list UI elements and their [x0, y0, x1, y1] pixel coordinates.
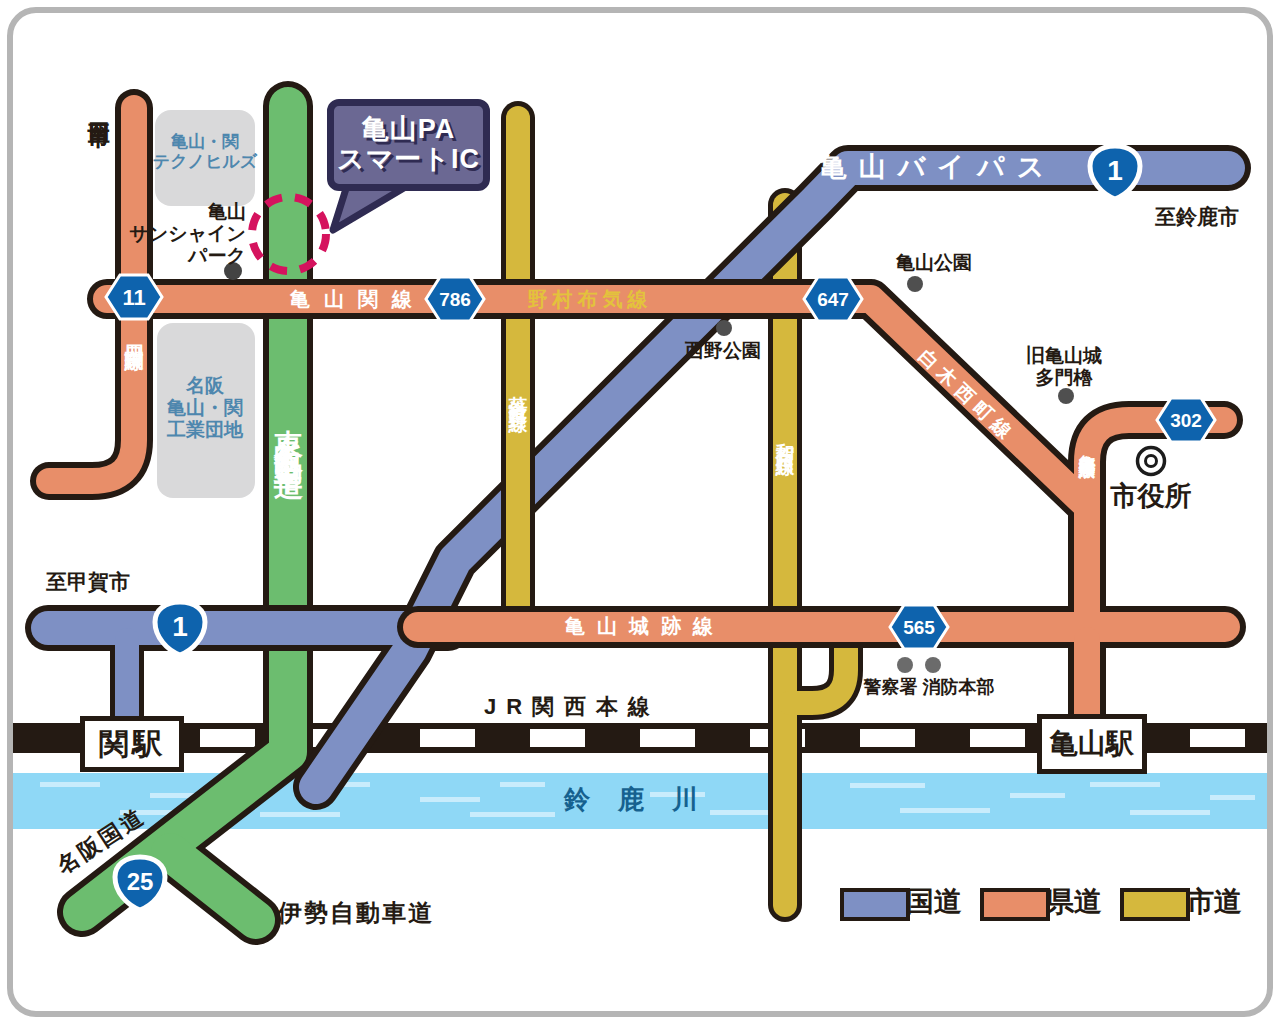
fire-hq-dot — [925, 657, 941, 673]
legend-label-prefectural: 県道 — [1046, 883, 1102, 921]
tamon-turret-dot — [1058, 388, 1074, 404]
nomura-fuke-label: 野村布気線 — [528, 288, 653, 311]
route-1-number: 1 — [1107, 155, 1123, 186]
seki-station: 関駅 — [80, 716, 184, 772]
callout-line1: 亀山PA — [362, 115, 456, 145]
route-786-number: 786 — [439, 289, 471, 310]
route-shield-11: 11 — [106, 275, 162, 319]
castle-line1: 旧亀山城 — [1026, 345, 1102, 367]
callout-line2: スマートIC — [337, 145, 480, 175]
route-shield-1-bypass: 1 — [1090, 146, 1140, 199]
sunshine-line3: パーク — [129, 245, 246, 267]
route-565-number: 565 — [903, 617, 935, 638]
route-shield-565: 565 — [890, 605, 948, 649]
old-castle-label: 旧亀山城 多門櫓 — [1026, 345, 1102, 389]
kameyama-station-label: 亀山駅 — [1050, 725, 1134, 763]
legend-swatch-prefectural — [980, 888, 1050, 921]
route-11-number: 11 — [122, 285, 145, 310]
kameyama-seki-label: 亀山関線 — [290, 288, 426, 311]
nishino-park-dot — [716, 320, 732, 336]
route-1-number-south: 1 — [172, 611, 188, 642]
sunshine-line1: 亀山 — [129, 201, 246, 223]
to-suzuka-label: 至鈴鹿市 — [1155, 205, 1239, 229]
kameyama-park-label: 亀山公園 — [896, 252, 972, 274]
route-302-number: 302 — [1170, 410, 1202, 431]
kogyo-line2: 亀山・関 — [167, 397, 243, 419]
teishajo-label: 亀山停車場石水渓線 — [1078, 441, 1097, 450]
police-dot — [897, 657, 913, 673]
seki-station-label: 関駅 — [99, 724, 165, 765]
cityhall-label: 市役所 — [1111, 481, 1192, 512]
waga-label: 和賀白川線 — [774, 427, 796, 447]
technohills-line1: 亀山・関 — [153, 132, 257, 152]
kogyo-line1: 名阪 — [167, 375, 243, 397]
kogyo-line3: 工業団地 — [167, 419, 243, 441]
cityhall-icon — [1138, 448, 1165, 475]
yokkaichi-seki-label: 四日市関線 — [123, 330, 145, 340]
to-koga-label: 至甲賀市 — [46, 570, 130, 594]
sunshine-park-label: 亀山 サンシャイン パーク — [129, 201, 246, 267]
ise-expressway-label: 伊勢自動車道 — [278, 899, 434, 927]
higashi-meihan-label: 東名阪自動車道 — [271, 406, 304, 455]
route-shield-647: 647 — [804, 277, 862, 321]
technohills-line2: テクノヒルズ — [153, 152, 257, 172]
legend-label-national: 国道 — [906, 883, 962, 921]
joseki-label: 亀山城跡線 — [565, 615, 725, 638]
route-647-number: 647 — [817, 289, 849, 310]
kameyama-station: 亀山駅 — [1037, 714, 1147, 774]
suzuka-river-label: 鈴鹿川 — [564, 785, 726, 815]
police-fire-label: 警察署 消防本部 — [863, 677, 994, 698]
kameyama-access-map: 11 786 647 565 302 1 1 25 — [0, 0, 1280, 1024]
route-25-number: 25 — [127, 868, 154, 895]
route-shield-786: 786 — [426, 277, 484, 321]
nishino-park-label: 西野公園 — [685, 340, 761, 362]
rakushin-label: 落針道野線 — [507, 380, 529, 405]
technohills-label: 亀山・関 テクノヒルズ — [153, 132, 257, 171]
route-shield-302: 302 — [1157, 398, 1215, 442]
legend-swatch-national — [840, 888, 910, 921]
smart-ic-callout: 亀山PA スマートIC — [327, 99, 490, 191]
jr-line-label: JR関西本線 — [484, 694, 660, 719]
industrial-park-label: 名阪 亀山・関 工業団地 — [167, 375, 243, 441]
sunshine-line2: サンシャイン — [129, 223, 246, 245]
legend-swatch-city — [1120, 888, 1190, 921]
castle-line2: 多門櫓 — [1026, 367, 1102, 389]
legend-label-city: 市道 — [1186, 883, 1242, 921]
kameyama-park-dot — [907, 276, 923, 292]
bypass-label: 亀山バイパス — [820, 152, 1057, 183]
